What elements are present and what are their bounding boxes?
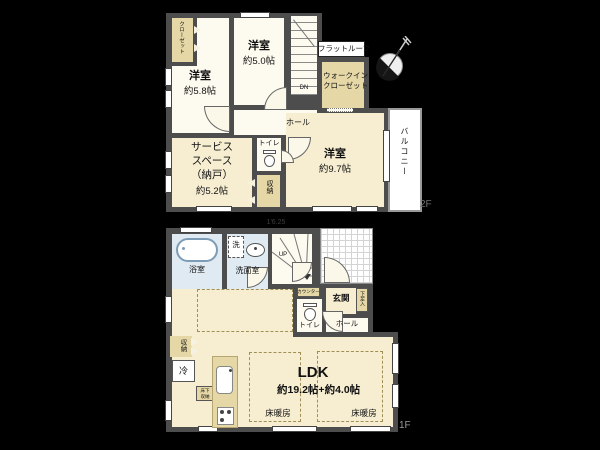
room-5-0-name: 洋室 [235,40,283,53]
service-label-3: （納戸） [172,169,252,181]
fridge-label: 冷 [172,366,195,377]
wic-label-2: クローゼット [323,82,363,91]
window [165,296,172,323]
floor-plan-canvas: バルコニー フラットルーフ 2F クローゼット 洋室 約5.8帖 洋室 約5.0… [0,0,600,450]
bathtub-drain-dot [182,247,185,250]
toilet-1f-label: トイレ [299,322,320,330]
hall-2f-label: ホール [280,118,316,127]
room-5-8-size: 約5.8帖 [172,86,228,97]
toilet-2f-label: トイレ [258,140,280,148]
floor-tag-1f: 1F [399,420,411,431]
wic-label-1: ウォークイン [323,72,363,81]
stairs-up-label: UP [274,252,292,259]
underfloor-label-1: 床下 [196,388,214,393]
window [180,227,212,233]
closet-door-mark [194,26,201,34]
balcony-label: バルコニー [399,127,410,197]
counter-label: カウンター [297,289,320,294]
washroom-sink-icon [246,243,265,257]
north-compass-icon [374,36,412,82]
ldk-size-label: 約19.2帖+約4.0帖 [277,384,349,396]
window [392,384,399,408]
room-9-7-size: 約9.7帖 [303,164,367,175]
floor-tag-2f: 2F [420,199,432,210]
service-size-label: 約5.2帖 [172,186,252,197]
toilet-icon-2f [263,150,276,154]
entrance-label: 玄関 [327,293,355,303]
storage-door-mark [191,338,198,346]
hall-1f-label: ホール [330,320,364,329]
floor-heating-left-label: 床暖房 [258,408,298,418]
window [196,206,232,212]
window [165,90,172,108]
ldk-4jo-dashed-zone [197,289,293,332]
flat-roof-label: フラットルーフ [318,45,365,54]
wic-opening-mark [327,108,353,112]
window [165,151,172,169]
closet-door-mark [194,44,201,52]
window [165,68,172,86]
stove-burner-dot [227,410,231,414]
sink-tap-dot [254,247,257,250]
room-5-8-name: 洋室 [176,70,224,83]
washer-label: 洗 [228,241,244,250]
service-label-2: スペース [172,155,252,167]
storage-door-mark [191,347,198,355]
faint-annotation: 1'6.25 [256,219,296,227]
stove-burner-dot [220,418,224,422]
stairs-down-label: DN [293,85,315,92]
room-9-7-name: 洋室 [311,148,359,161]
bathtub-icon [176,238,218,262]
window [356,206,378,212]
window [350,426,391,432]
toilet-icon-1f [303,303,317,307]
ldk-name-label: LDK [293,364,333,382]
stairs-2f [291,16,317,95]
stove-burner-dot [220,410,224,414]
window [312,206,352,212]
shoe-cabinet-label: 下足入 [359,291,366,310]
window [240,12,270,18]
underfloor-label-2: 収納 [196,394,214,399]
window [392,343,399,374]
service-label-1: サービス [172,141,252,153]
floor-heating-right-label: 床暖房 [346,408,382,418]
window [165,400,172,421]
room-5-0-size: 約5.0帖 [231,56,287,67]
storage-2f-label: 収納 [264,180,274,204]
window [272,426,317,432]
storage-1f-label: 収納 [177,339,187,355]
bath-label: 浴室 [180,265,214,274]
kitchen-tap-dot [229,369,232,372]
window [383,130,390,182]
window [165,175,172,193]
closet-2f-label: クローゼット [177,21,185,61]
washroom-label: 洗面室 [227,266,268,275]
